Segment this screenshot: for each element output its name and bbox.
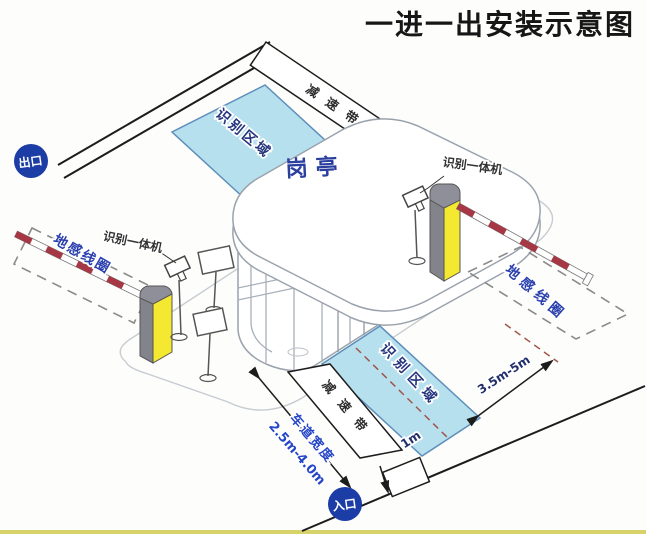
machine-side — [140, 298, 153, 363]
bottom-edge-strip — [0, 530, 646, 534]
machine-front — [444, 200, 460, 281]
entrance-barrier-machine — [430, 184, 460, 281]
machine-side — [430, 200, 444, 281]
booth-label: 岗亭 — [285, 153, 346, 182]
exit-badge: 出口 — [14, 144, 48, 178]
entrance-badge: 入口 — [328, 487, 362, 521]
diagram-title: 一进一出安装示意图 — [365, 8, 635, 41]
diagram-canvas: 减速带 识别区域 地感线圈 — [0, 0, 646, 534]
machine-front — [153, 294, 172, 363]
exit-barrier-machine — [140, 286, 172, 363]
installation-diagram: 减速带 识别区域 地感线圈 — [0, 0, 646, 534]
